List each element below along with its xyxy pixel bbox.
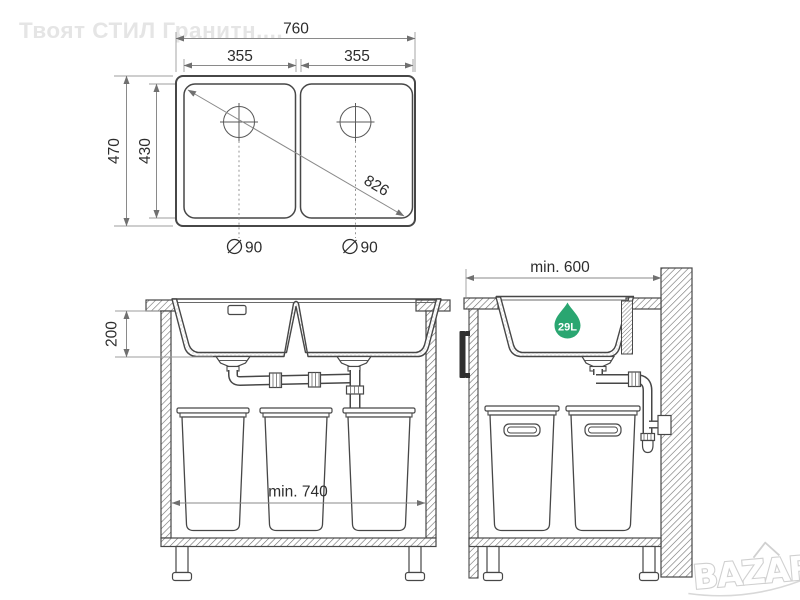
technical-drawing: Твоят СТИЛ Гранитн.... 760 355 355 470 <box>0 0 800 600</box>
overflow-channel <box>622 301 633 354</box>
strainer-left <box>216 357 250 372</box>
svg-text:90: 90 <box>361 240 379 257</box>
cabinet-bottom <box>469 538 661 547</box>
strainer-right <box>337 357 371 372</box>
dim-bowl-height: 200 <box>104 311 214 357</box>
front-section-view: 200 min. 740 <box>104 299 451 581</box>
waste-bin <box>177 408 249 531</box>
bowl-left <box>184 84 296 218</box>
capacity-drop-icon: 29L <box>555 303 581 339</box>
bowl-right <box>301 84 413 218</box>
cabinet-leg-right <box>640 547 659 581</box>
dim-bowl-width-left: 355 <box>184 48 296 72</box>
waste-bin <box>343 408 415 531</box>
sink-section-body <box>172 299 441 357</box>
pipe-coupler <box>629 372 641 387</box>
bazar-logo-watermark: BAZAR <box>685 539 800 600</box>
cabinet-wall-left <box>161 311 171 538</box>
sink-installation-drawing: Твоят СТИЛ Гранитн.... 760 355 355 470 <box>0 0 800 600</box>
capacity-label: 29L <box>558 322 577 334</box>
countertop-front <box>464 298 498 309</box>
svg-text:min. 740: min. 740 <box>268 484 328 501</box>
pipe-coupler <box>270 373 282 388</box>
dim-bowl-width-right: 355 <box>301 48 413 72</box>
brand-watermark-text: Твоят СТИЛ Гранитн.... <box>19 18 283 43</box>
waste-bin <box>566 406 640 531</box>
pipe-coupler <box>309 373 321 388</box>
svg-text:760: 760 <box>283 21 309 38</box>
svg-text:430: 430 <box>137 138 154 164</box>
svg-text:min. 600: min. 600 <box>530 259 590 276</box>
drain-pipe-horizontal <box>233 370 350 381</box>
label-drain-diameter-left: 90 <box>228 240 263 257</box>
cabinet-leg-left <box>173 547 192 581</box>
side-section-view: 29L <box>460 259 693 581</box>
door-handle <box>460 331 471 378</box>
label-drain-diameter-right: 90 <box>343 240 378 257</box>
logo-text: BAZAR <box>691 548 800 597</box>
dim-min-cabinet-depth: min. 600 <box>466 259 661 297</box>
svg-text:200: 200 <box>104 321 121 347</box>
strainer <box>582 357 614 372</box>
cabinet-bottom <box>161 538 436 547</box>
plan-view: 760 355 355 470 430 <box>106 21 415 257</box>
svg-text:355: 355 <box>344 48 370 65</box>
cabinet-leg-right <box>406 547 425 581</box>
overflow-hole <box>228 306 246 315</box>
p-trap <box>641 434 655 453</box>
pipe-coupler <box>347 386 364 394</box>
waste-bin <box>485 406 559 531</box>
dim-bowl-depth: 430 <box>137 84 181 218</box>
svg-text:470: 470 <box>106 138 123 164</box>
svg-text:355: 355 <box>227 48 253 65</box>
cabinet-leg-left <box>484 547 503 581</box>
logo-roof-icon <box>752 541 779 557</box>
countertop-right <box>416 300 450 311</box>
waste-bin <box>260 408 332 531</box>
svg-text:90: 90 <box>245 240 263 257</box>
